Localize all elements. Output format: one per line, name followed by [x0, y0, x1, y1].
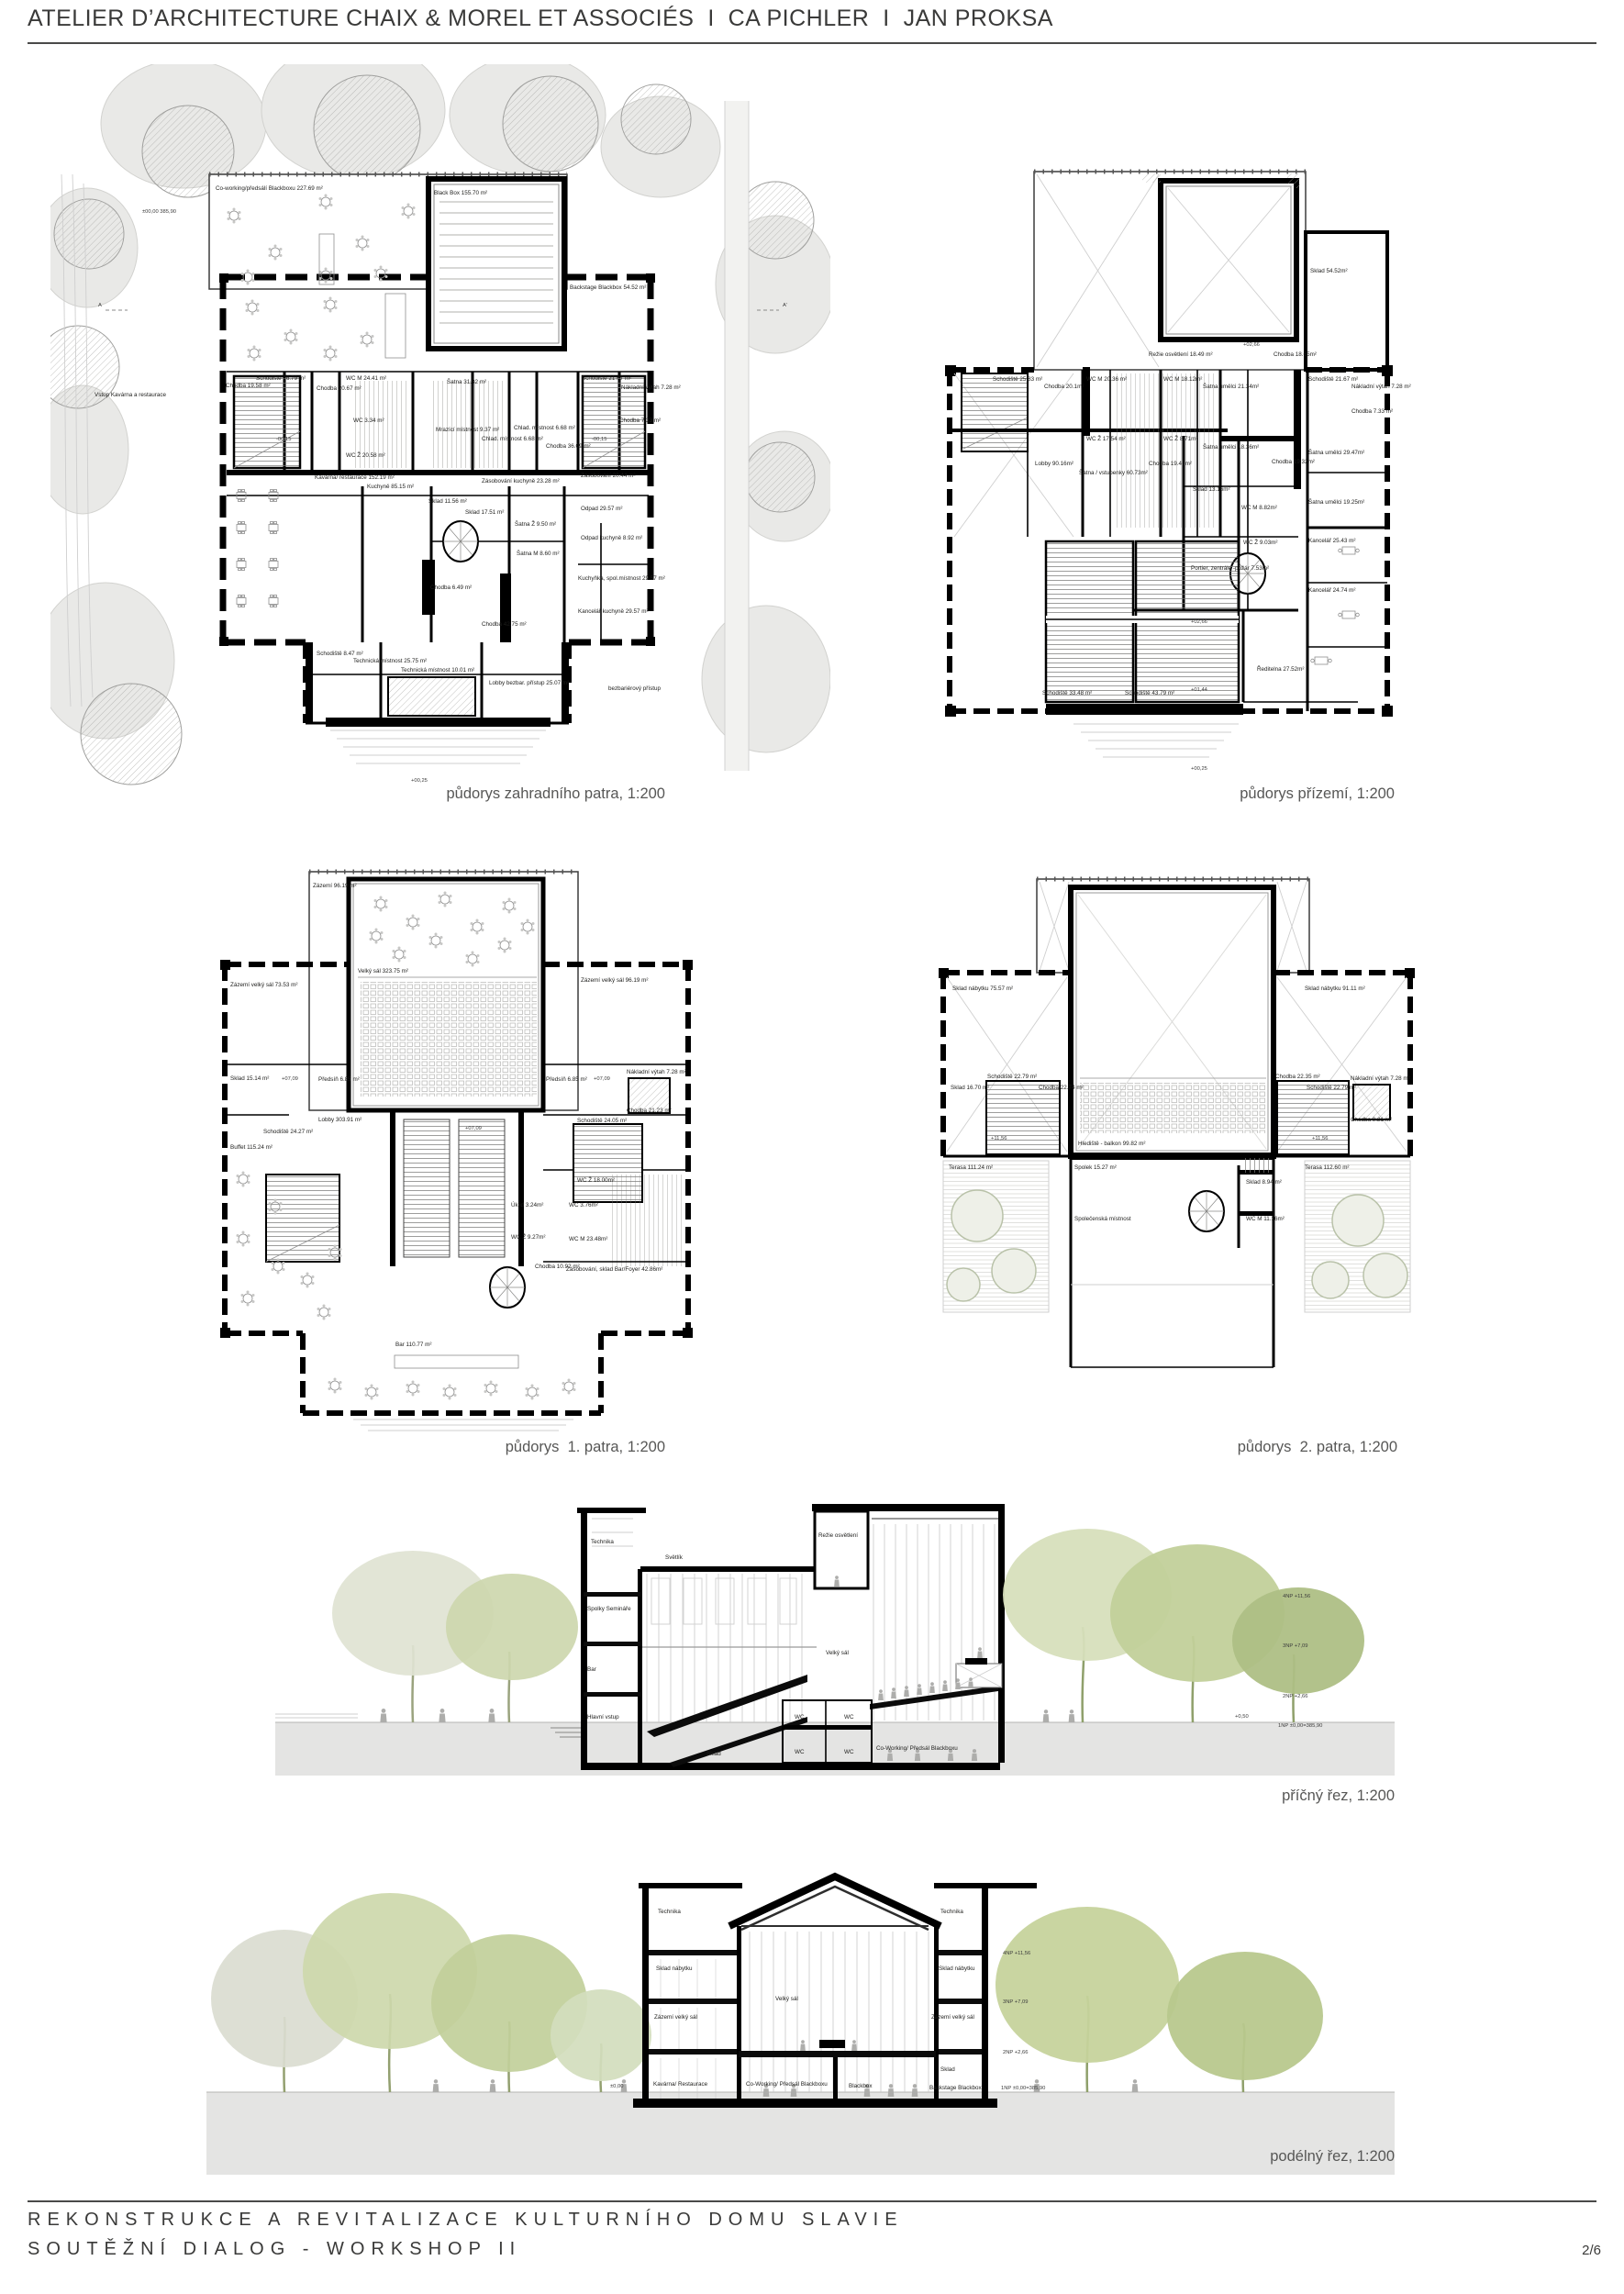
- room-label: Chodba 20.1m²: [1044, 384, 1084, 390]
- room-label: Chodba 19.41m²: [1149, 461, 1192, 467]
- room-label: Vstup Kavárna a restaurace: [95, 392, 167, 398]
- room-label: Šatna 31.32 m²: [447, 377, 486, 385]
- s2-trees-right: [996, 1907, 1323, 2092]
- room-label: Terasa 112.60 m²: [1305, 1164, 1350, 1171]
- room-label: WC Ž 9.27m²: [511, 1232, 545, 1241]
- room-label: Chodba 6.49 m²: [430, 585, 472, 591]
- room-label: Technika: [658, 1909, 681, 1915]
- s1-trees-left: [332, 1551, 578, 1722]
- room-label: Odpad 29.57 m²: [581, 506, 623, 512]
- level-label: -00,15: [592, 437, 606, 442]
- room-label: WC M 11.16m²: [1246, 1216, 1285, 1222]
- room-label: Zásobování 20.44 m²: [581, 473, 636, 479]
- room-label: Kancelář kuchyně 29.57 m²: [578, 608, 649, 615]
- level-label: 2NP +2,66: [1003, 2050, 1028, 2055]
- room-label: WC: [795, 1714, 805, 1720]
- room-label: Šatna Ž 9.50 m²: [515, 519, 556, 528]
- longitudinal-section-svg: Technika Technika Sklad nábytku Sklad ná…: [206, 1867, 1395, 2175]
- room-label: Kuchyňka, spol.místnost 29.57 m²: [578, 575, 665, 582]
- room-label: WC 3.76m²: [569, 1202, 598, 1208]
- level-label: 1NP ±0,00=385,90: [1278, 1723, 1322, 1729]
- room-label: WC Ž 9.03m²: [1243, 538, 1277, 546]
- caption-second-floor: půdorys 2. patra, 1:200: [1129, 1439, 1397, 1456]
- room-label: Schodiště 22.79 m²: [987, 1074, 1037, 1080]
- level-label: -00,15: [276, 437, 291, 442]
- room-label: Kavárna/ Restaurace: [653, 2081, 708, 2088]
- page-number: 2/6: [1582, 2243, 1601, 2258]
- room-label: WC M 8.82m²: [1241, 505, 1277, 511]
- level-label: +02,66: [1191, 619, 1207, 625]
- room-label: Sklad: [940, 2066, 955, 2073]
- room-label: Sklad nábytku: [656, 1965, 693, 1972]
- room-label: Schodiště 43.79 m²: [1125, 690, 1174, 696]
- room-label: Předsíň 6.85 m²: [318, 1076, 360, 1083]
- room-label: Šatna umělci 21.34m²: [1203, 382, 1259, 390]
- caption-first-floor: půdorys 1. patra, 1:200: [395, 1439, 665, 1456]
- room-label: Backstage Blackbox 54.52 m²: [570, 284, 646, 291]
- room-label: Kancelář 24.74 m²: [1308, 587, 1355, 594]
- room-label: Chodba 22.74 m²: [1039, 1085, 1084, 1091]
- room-label: Šatna / vstupenky 60.73m²: [1079, 468, 1148, 476]
- room-label: Kavárna/ restaurace 152.19 m²: [315, 474, 395, 481]
- level-label: +07,09: [282, 1076, 298, 1082]
- room-label: Zázemí velký sál: [931, 2014, 974, 2021]
- room-label: Lobby 90.16m²: [1035, 461, 1073, 467]
- level-label: +02,66: [1243, 342, 1260, 348]
- room-label: Zázemí velký sál: [654, 2014, 697, 2021]
- room-label: Režie osvětlení: [818, 1532, 858, 1539]
- room-label: Sklad nábytku: [939, 1965, 975, 1972]
- room-label: Chlad. místnost 6.68 m²: [482, 436, 543, 442]
- room-label: WC M 23.48m²: [569, 1236, 607, 1242]
- level-label: ±0,00: [610, 2084, 623, 2089]
- room-label: Šatna umělci 18.36m²: [1203, 442, 1259, 451]
- room-label: WC: [844, 1714, 854, 1720]
- presentation-sheet: ATELIER D’ARCHITECTURE CHAIX & MOREL ET …: [0, 0, 1624, 2294]
- room-label: Technická místnost 10.01 m²: [401, 667, 474, 674]
- room-label: Chodba 22.35 m²: [1275, 1074, 1320, 1080]
- room-label: Schodiště 8.47 m²: [317, 651, 363, 657]
- room-label: Schodiště 24.05 m²: [577, 1118, 627, 1124]
- caption-cross-section: příčný řez, 1:200: [1129, 1787, 1395, 1805]
- room-label: Hlavní vstup: [587, 1714, 619, 1720]
- level-label: 4NP +11,56: [1003, 1951, 1030, 1956]
- room-label: Schodiště 25.83 m²: [993, 376, 1042, 383]
- room-label: Nákladní výtah 7.28 m²: [621, 384, 681, 391]
- room-label: Zázemí velký sál 73.53 m²: [230, 982, 298, 988]
- level-label: +11,56: [1312, 1136, 1328, 1141]
- room-label: Předsíň 6.85 m²: [546, 1076, 587, 1083]
- room-label: Lobby bezbar. přístup 25.07 m²: [489, 680, 569, 686]
- room-label: Šatna umělci 29.47m²: [1308, 448, 1364, 456]
- level-label: +00,25: [411, 778, 428, 784]
- room-label: WC Ž 18.00m²: [577, 1175, 615, 1184]
- room-label: Schodiště 26.79 m²: [256, 375, 306, 382]
- room-label: Nákladní výtah 7.28 m²: [627, 1069, 686, 1075]
- room-label: bezbariérový přístup: [608, 685, 662, 692]
- room-label: Sklad: [706, 1751, 721, 1757]
- level-label: +07,09: [594, 1076, 610, 1082]
- room-label: WC Ž 8.71m²: [1163, 434, 1197, 442]
- level-label: +00,25: [1191, 766, 1207, 772]
- room-label: Zásobování, sklad Bar/Foyer 42.86m²: [566, 1266, 662, 1273]
- level-label: 1NP ±0,00=385,90: [1001, 2086, 1045, 2091]
- level-label: 2NP +2,66: [1283, 1694, 1307, 1699]
- room-label: WC: [844, 1749, 854, 1755]
- s2-building: [633, 1876, 1037, 2108]
- plan-second-floor-svg: Sklad nábytku 75.57 m² Sklad nábytku 91.…: [936, 853, 1418, 1441]
- footer-rule: [28, 2200, 1596, 2202]
- room-label: Společenská místnost: [1074, 1216, 1131, 1222]
- room-label: WC Ž 20.58 m²: [346, 451, 385, 459]
- room-label: WC 3.34 m²: [353, 418, 384, 424]
- room-label: Sklad 11.56 m²: [428, 498, 467, 505]
- room-label: Chodba 18.65m²: [1274, 351, 1317, 358]
- room-label: Chodba 7.33 m²: [1351, 408, 1393, 415]
- level-label: +11,56: [991, 1136, 1007, 1141]
- room-label: Ředitelna 27.52m²: [1257, 664, 1304, 673]
- room-label: Sklad 54.52m²: [1310, 268, 1348, 274]
- room-label: Chodba 9.21 m²: [1351, 1117, 1392, 1123]
- caption-garden-floor: půdorys zahradního patra, 1:200: [395, 785, 665, 803]
- p4-building-walls: [939, 879, 1415, 1367]
- plan-ground-floor-svg: Sklad 54.52m² Režie osvětlení 18.49 m² C…: [936, 133, 1418, 794]
- plan-garden-floor-svg: Co-working/předsálí Blackboxu 227.69 m² …: [50, 64, 830, 807]
- room-label: Nákladní výtah 7.28 m²: [1351, 384, 1411, 390]
- project-title-line1: REKONSTRUKCE A REVITALIZACE KULTURNÍHO D…: [28, 2210, 904, 2231]
- s1-trees-right: [1003, 1529, 1364, 1722]
- project-title-line2: SOUTĚŽNÍ DIALOG - WORKSHOP II: [28, 2239, 521, 2260]
- room-label: Lobby 303.91 m²: [318, 1117, 362, 1123]
- level-label: 3NP +7,09: [1003, 1999, 1028, 2005]
- s2-trees-left: [211, 1893, 651, 2092]
- room-label: Sklad 16.70 m²: [951, 1085, 989, 1091]
- room-label: Světlík: [665, 1554, 684, 1561]
- level-label: 3NP +7,09: [1283, 1643, 1307, 1649]
- room-label: Mrazící místnost 9.37 m²: [436, 427, 499, 433]
- room-label: Kancelář 25.43 m²: [1308, 538, 1355, 544]
- room-label: Zásobování kuchyně 23.28 m²: [482, 478, 560, 484]
- room-label: Velký sál 323.75 m²: [358, 968, 408, 974]
- level-label: +07,09: [465, 1126, 482, 1131]
- room-label: Sklad 8.94 m²: [1246, 1179, 1282, 1186]
- room-label: Technická místnost 25.75 m²: [353, 658, 427, 664]
- room-label: Sklad nábytku 91.11 m²: [1305, 986, 1365, 992]
- room-label: Schodiště 21.67 m²: [1308, 376, 1358, 383]
- room-label: Chodba 21.23 m²: [627, 1108, 672, 1114]
- room-label: Bar: [587, 1666, 596, 1673]
- room-label: Šatna umělci 19.25m²: [1308, 497, 1364, 506]
- caption-ground-floor: půdorys přízemí, 1:200: [1129, 785, 1395, 803]
- room-label: Chodba 19.32m²: [1272, 459, 1315, 465]
- room-label: WC M 20.36 m²: [1086, 376, 1127, 383]
- room-label: Blackbox: [849, 2083, 873, 2089]
- room-label: Chlad. místnost 6.68 m²: [514, 425, 575, 431]
- room-label: WC M 24.41 m²: [346, 375, 386, 382]
- room-label: Co-Working/ Předsál Blackboxu: [876, 1745, 958, 1752]
- room-label: Technika: [591, 1539, 614, 1545]
- sheet-title: ATELIER D’ARCHITECTURE CHAIX & MOREL ET …: [28, 6, 1053, 32]
- room-label: Zázemí velký sál 96.19 m²: [581, 977, 649, 984]
- cross-section-svg: Technika Světlík Spolky Semináře Bar Hla…: [275, 1491, 1395, 1776]
- room-label: Co-Working/ Předsál Blackboxu: [746, 2081, 828, 2088]
- room-label: Black Box 155.70 m²: [434, 190, 487, 196]
- room-label: Backstage Blackbox: [929, 2085, 983, 2091]
- room-label: Co-working/předsálí Blackboxu 227.69 m²: [216, 185, 323, 192]
- level-label: 4NP +11,56: [1283, 1594, 1310, 1599]
- plan-first-floor-svg: Zázemí 96.19 m² Velký sál 323.75 m² Záze…: [216, 849, 711, 1445]
- room-label: Spolek 15.27 m²: [1074, 1164, 1117, 1171]
- room-label: Nákladní výtah 7.28 m²: [1351, 1075, 1410, 1082]
- room-label: Schodiště 24.27 m²: [263, 1129, 313, 1135]
- room-label: Velký sál: [826, 1650, 849, 1656]
- room-label: Hlediště - balkon 99.82 m²: [1078, 1141, 1146, 1147]
- header-rule: [28, 42, 1596, 44]
- room-label: Terasa 111.24 m²: [949, 1164, 993, 1171]
- room-label: Odpad kuchyně 8.92 m²: [581, 535, 642, 541]
- room-label: WC M 18.12m²: [1163, 376, 1202, 383]
- room-label: Schodiště 21.67 m²: [582, 375, 631, 382]
- p1-building-walls: [106, 174, 779, 763]
- room-label: Buffet 115.24 m²: [230, 1144, 273, 1151]
- room-label: Schodiště 22.79 m²: [1307, 1085, 1356, 1091]
- section-mark: A: [98, 303, 102, 308]
- room-label: Chodba 42.75 m²: [482, 621, 527, 628]
- room-label: Chodba 19.58 m²: [226, 383, 271, 389]
- room-label: Sklad 13.16m²: [1193, 486, 1230, 493]
- room-label: Chodba 36.09 m²: [546, 443, 591, 450]
- room-label: Šatna M 8.60 m²: [517, 549, 560, 557]
- room-label: Chodba 7.33 m²: [619, 418, 661, 424]
- s1-people-left: [380, 1709, 495, 1722]
- room-label: Spolky Semináře: [587, 1606, 631, 1612]
- room-label: Sklad 15.14 m²: [230, 1075, 269, 1082]
- room-label: Portier, zentrále -požár 7.53m²: [1191, 565, 1269, 572]
- caption-longitudinal-section: podélný řez, 1:200: [1129, 2148, 1395, 2166]
- level-label: +01,44: [1191, 687, 1208, 693]
- room-label: Sklad nábytku 75.57 m²: [952, 986, 1013, 992]
- room-label: Technika: [940, 1909, 963, 1915]
- room-label: Sklad 17.51 m²: [465, 509, 504, 516]
- level-label: +0,50: [1235, 1714, 1249, 1720]
- room-label: Úklid 3.24m²: [511, 1200, 543, 1208]
- room-label: Bar 110.77 m²: [395, 1342, 431, 1348]
- room-label: Kuchyně 85.15 m²: [367, 484, 414, 490]
- level-label: ±00,00 385,90: [142, 209, 176, 215]
- room-label: WC: [795, 1749, 805, 1755]
- room-label: Režie osvětlení 18.49 m²: [1149, 351, 1213, 358]
- room-label: Schodiště 33.48 m²: [1042, 690, 1092, 696]
- room-label: Velký sál: [775, 1996, 798, 2002]
- room-label: WC Ž 17.54 m²: [1086, 434, 1126, 442]
- section-mark: A': [783, 303, 787, 308]
- room-label: Zázemí 96.19 m²: [313, 883, 357, 889]
- room-label: Chodba 20.67 m²: [317, 385, 362, 392]
- p3-building-walls: [220, 872, 693, 1431]
